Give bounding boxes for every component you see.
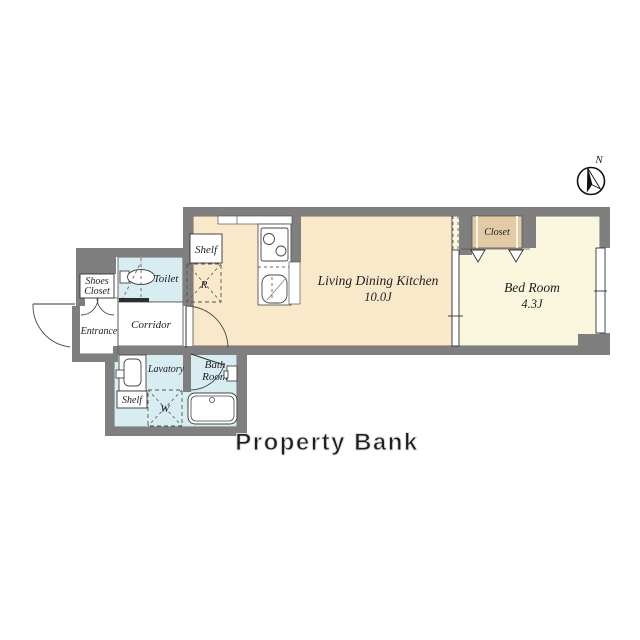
bedroom-name-label: Bed Room bbox=[504, 280, 560, 295]
wall-segment bbox=[240, 346, 610, 355]
wall-segment bbox=[600, 207, 610, 248]
bath-faucet-panel bbox=[227, 366, 237, 381]
shoes-closet-label-line2: Closet bbox=[84, 286, 110, 297]
wall-segment bbox=[80, 257, 116, 274]
wall-segment bbox=[237, 354, 247, 432]
washer-label: W bbox=[160, 403, 170, 415]
counter-end-strip bbox=[289, 262, 300, 304]
compass-north-label: N bbox=[594, 154, 603, 166]
ldk-name-label: Living Dining Kitchen bbox=[317, 273, 439, 288]
lavatory-label: Lavatory bbox=[147, 364, 185, 375]
washbasin-faucet bbox=[116, 370, 124, 378]
entrance-label: Entrance bbox=[80, 326, 118, 337]
floor-plan-page: Shelf R Toilet Shoes Closet Entrance Cor… bbox=[0, 0, 640, 640]
burner-icon bbox=[264, 234, 275, 245]
floor-plan-drawing: Shelf R Toilet Shoes Closet Entrance Cor… bbox=[0, 0, 640, 640]
bedroom-window bbox=[594, 248, 607, 333]
refrigerator-label: R bbox=[200, 279, 208, 291]
wall-segment bbox=[522, 216, 536, 248]
corridor-label: Corridor bbox=[131, 319, 171, 331]
kitchen-sink bbox=[262, 275, 287, 303]
wall-segment bbox=[183, 207, 610, 216]
ldk-size-label: 10.0J bbox=[364, 290, 393, 304]
wall-segment bbox=[113, 346, 244, 355]
kitchen-shelf-label: Shelf bbox=[195, 244, 219, 256]
burner-icon bbox=[276, 246, 286, 256]
wall-segment bbox=[76, 248, 193, 257]
window-frame bbox=[596, 248, 605, 333]
wall-segment bbox=[183, 346, 191, 392]
bedroom-size-label: 4.3J bbox=[521, 297, 544, 311]
toilet-door bbox=[119, 298, 149, 302]
entrance-door-arc bbox=[33, 304, 70, 347]
lavatory-shelf-label: Shelf bbox=[122, 395, 143, 406]
wall-segment bbox=[72, 306, 80, 362]
wall-segment bbox=[105, 427, 247, 436]
wall-segment bbox=[105, 357, 114, 436]
toilet-label: Toilet bbox=[154, 273, 180, 285]
sliding-door bbox=[452, 250, 459, 346]
bath-faucet-knob bbox=[224, 371, 228, 378]
closet-label: Closet bbox=[484, 227, 510, 238]
kitchen-counter-strip bbox=[218, 216, 292, 224]
compass: N bbox=[578, 154, 605, 195]
watermark-text: Property Bank bbox=[235, 429, 419, 456]
